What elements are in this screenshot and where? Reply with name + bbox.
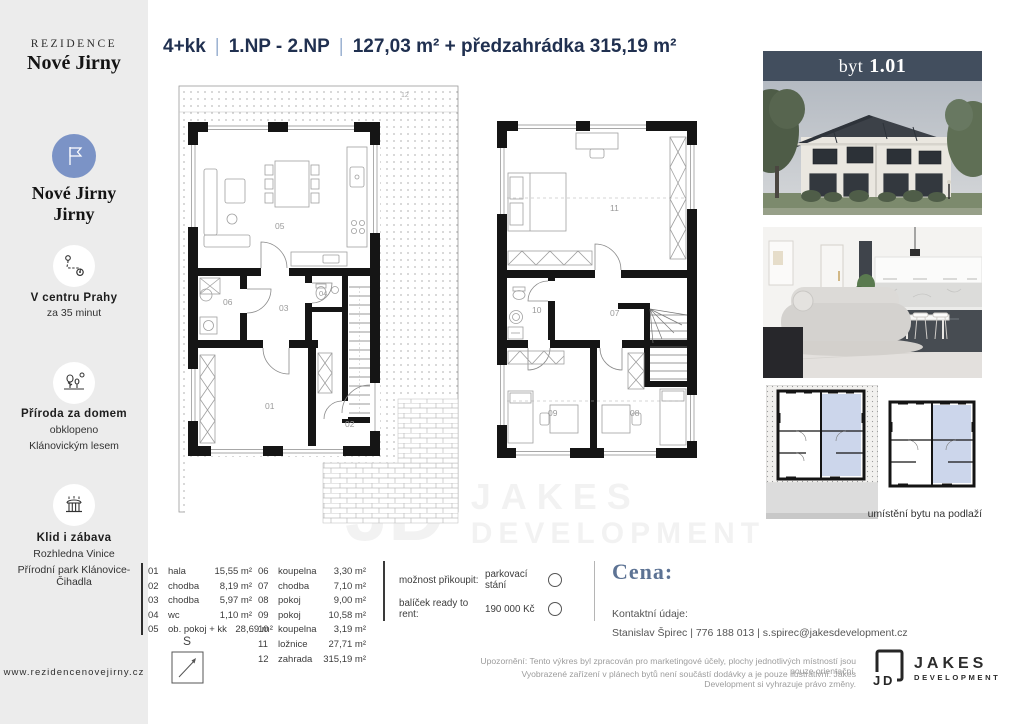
room-number: 01 [148, 566, 164, 577]
options-block: možnost přikoupit: parkovací stání balíč… [383, 561, 595, 621]
room-label: 02 [345, 419, 355, 429]
brochure-page: REZIDENCE Nové Jirny Nové Jirny Jirny V … [0, 0, 1024, 724]
room-legend-col1: 01hala15,55 m² 02chodba8,19 m² 03chodba5… [148, 566, 252, 639]
area-summary: 127,03 m² + předzahrádka 315,19 m² [353, 36, 677, 58]
developer-name: JAKES [914, 655, 1000, 673]
room-name: zahrada [274, 654, 320, 665]
floor-range: 1.NP - 2.NP [229, 36, 330, 58]
legend-row: 07chodba7,10 m² [258, 581, 366, 596]
feature-line: Přírodní park Klánovice-Čihadla [0, 564, 148, 588]
room-legend-col2: 06koupelna3,30 m² 07chodba7,10 m² 08poko… [258, 566, 366, 668]
feature-line: Klánovickým lesem [0, 440, 148, 452]
room-area: 3,19 m² [320, 624, 366, 635]
trees-icon [61, 370, 87, 396]
room-name: pokoj [274, 610, 320, 621]
website-link[interactable]: www.rezidencenovejirny.cz [0, 667, 148, 678]
room-number: 07 [258, 581, 274, 592]
layout-type: 4+kk [163, 36, 206, 58]
room-area: 1,10 m² [206, 610, 252, 621]
option-row: možnost přikoupit: parkovací stání [399, 569, 594, 591]
option-row: balíček ready to rent: 190 000 Kč [399, 598, 594, 620]
room-label: 07 [610, 308, 620, 318]
room-name: wc [164, 610, 206, 621]
legend-row: 09pokoj10,58 m² [258, 610, 366, 625]
feature-line: obklopeno [0, 424, 148, 436]
room-label: 12 [401, 92, 409, 99]
jd-monogram-icon: J D [868, 648, 906, 688]
contact-info[interactable]: Stanislav Špirec | 776 188 013 | s.spire… [612, 627, 908, 639]
room-label: 09 [548, 408, 558, 418]
flag-icon [63, 144, 85, 168]
room-label: 11 [610, 203, 619, 213]
floorplan-1np: 05 06 03 04 01 02 12 [175, 83, 465, 558]
location-plan-1 [766, 385, 878, 519]
interior-photo [763, 227, 982, 378]
room-number: 09 [258, 610, 274, 621]
option-value: parkovací stání [485, 569, 548, 591]
route-icon-circle [53, 245, 95, 287]
price-title: Cena: [612, 559, 673, 585]
legend-row: 01hala15,55 m² [148, 566, 252, 581]
developer-subtitle: DEVELOPMENT [914, 673, 1000, 682]
page-title: 4+kk | 1.NP - 2.NP | 127,03 m² + předzah… [163, 36, 676, 58]
room-area: 8,19 m² [206, 581, 252, 592]
room-area: 27,71 m² [320, 639, 366, 650]
lookout-tower-icon [61, 492, 87, 518]
room-number: 05 [148, 624, 164, 635]
exterior-photo [763, 81, 982, 215]
room-number: 08 [258, 595, 274, 606]
room-number: 03 [148, 595, 164, 606]
legend-row: 03chodba5,97 m² [148, 595, 252, 610]
floorplan-2np: 11 10 07 09 08 [492, 103, 704, 475]
room-area: 7,10 m² [320, 581, 366, 592]
developer-logo: J D JAKES DEVELOPMENT [868, 648, 1000, 688]
location-plan-2 [884, 398, 980, 502]
room-name: hala [164, 566, 206, 577]
location-name: Nové Jirny Jirny [0, 183, 148, 225]
compass-icon [170, 650, 206, 686]
legend-row: 02chodba8,19 m² [148, 581, 252, 596]
unit-number: 1.01 [869, 55, 906, 78]
feature-title: Příroda za domem [0, 408, 148, 420]
legend-divider [141, 563, 143, 635]
flag-icon-circle [52, 134, 96, 178]
legend-row: 06koupelna3,30 m² [258, 566, 366, 581]
legend-row: 10koupelna3,19 m² [258, 624, 366, 639]
option-checkbox[interactable] [548, 602, 562, 616]
room-label: 04 [319, 289, 327, 298]
room-area: 315,19 m² [320, 654, 366, 665]
room-number: 11 [258, 639, 274, 650]
separator: | [215, 36, 220, 58]
unit-number-banner: byt 1.01 [763, 51, 982, 81]
trees-icon-circle [53, 362, 95, 404]
unit-prefix: byt [839, 56, 864, 77]
feature-line: za 35 minut [0, 307, 148, 319]
option-checkbox[interactable] [548, 573, 562, 587]
room-label: 08 [630, 408, 640, 418]
room-name: chodba [164, 595, 206, 606]
option-value: 190 000 Kč [485, 604, 548, 615]
separator: | [339, 36, 344, 58]
room-label: 05 [275, 221, 285, 231]
room-area: 3,30 m² [320, 566, 366, 577]
room-name: ložnice [274, 639, 320, 650]
room-name: pokoj [274, 595, 320, 606]
sidebar: REZIDENCE Nové Jirny Nové Jirny Jirny V … [0, 0, 148, 724]
room-label: 10 [532, 305, 542, 315]
room-area: 15,55 m² [206, 566, 252, 577]
room-area: 5,97 m² [206, 595, 252, 606]
option-label: možnost přikoupit: [399, 575, 485, 586]
brand-rezidence-label: REZIDENCE [0, 38, 148, 50]
tower-icon-circle [53, 484, 95, 526]
feature-title: Klid i zábava [0, 532, 148, 544]
room-number: 02 [148, 581, 164, 592]
brand-name: Nové Jirny [0, 52, 148, 75]
room-label: 01 [265, 401, 275, 411]
svg-text:J: J [873, 673, 880, 688]
legend-row: 08pokoj9,00 m² [258, 595, 366, 610]
route-icon [61, 253, 87, 279]
svg-text:D: D [883, 673, 892, 688]
feature-line: Rozhledna Vinice [0, 548, 148, 560]
room-name: chodba [274, 581, 320, 592]
room-name: koupelna [274, 624, 320, 635]
legend-row: 04wc1,10 m² [148, 610, 252, 625]
room-number: 12 [258, 654, 274, 665]
room-number: 10 [258, 624, 274, 635]
room-area: 9,00 m² [320, 595, 366, 606]
contact-label: Kontaktní údaje: [612, 608, 688, 620]
legend-row: 12zahrada315,19 m² [258, 654, 366, 669]
legend-row: 11ložnice27,71 m² [258, 639, 366, 654]
room-area: 10,58 m² [320, 610, 366, 621]
room-label: 03 [279, 303, 289, 313]
room-name: koupelna [274, 566, 320, 577]
room-number: 06 [258, 566, 274, 577]
room-number: 04 [148, 610, 164, 621]
room-label: 06 [223, 297, 233, 307]
disclaimer-line2: Vyobrazené zařízení v plánech bytů není … [470, 669, 856, 689]
room-name: chodba [164, 581, 206, 592]
option-label: balíček ready to rent: [399, 598, 485, 620]
feature-title: V centru Prahy [0, 292, 148, 304]
compass-north-label: S [163, 634, 211, 648]
location-caption: umístění bytu na podlaží [766, 508, 982, 520]
